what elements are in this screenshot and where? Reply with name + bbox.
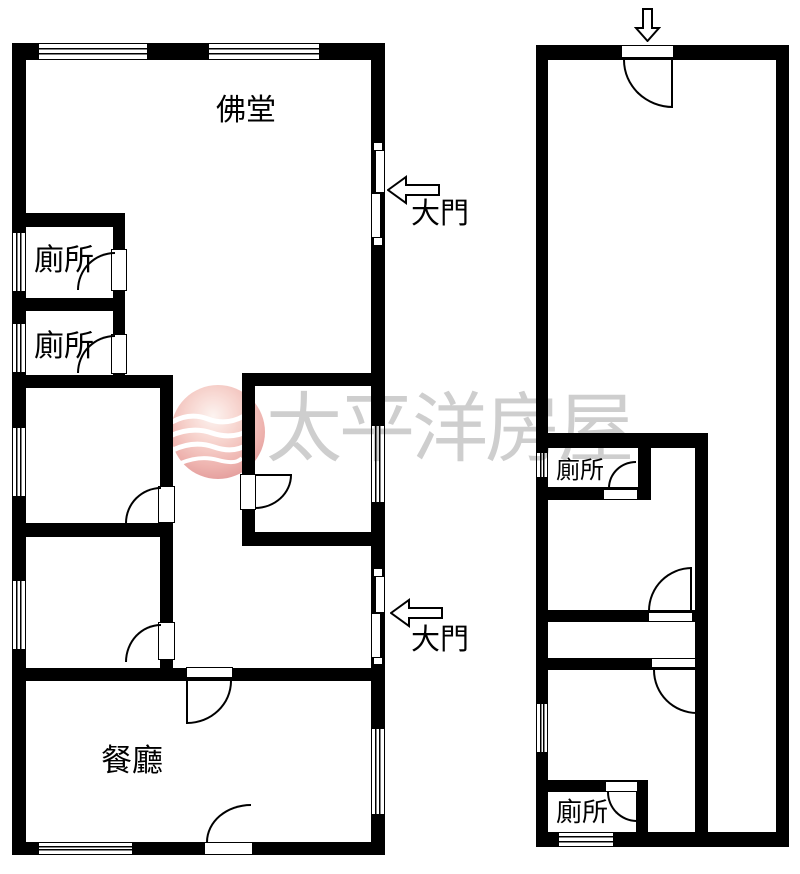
- window: [12, 232, 26, 292]
- door-leaf: [204, 842, 253, 855]
- wall: [12, 375, 173, 388]
- sliding-door-panel: [375, 150, 385, 193]
- window: [558, 832, 614, 847]
- window: [12, 323, 26, 373]
- sliding-door-panel: [371, 193, 381, 238]
- sliding-door-panel: [375, 576, 385, 613]
- door-swing-arc: [187, 681, 232, 724]
- window: [12, 580, 26, 650]
- door-leaf: [648, 612, 693, 622]
- door-leaf: [240, 474, 256, 510]
- wall: [242, 373, 255, 540]
- door-swing-arc: [653, 670, 697, 714]
- door-leaf: [603, 489, 638, 500]
- wall: [12, 213, 125, 227]
- window: [38, 43, 148, 60]
- room-label-toilet-1: 廁所: [34, 246, 94, 276]
- door-leaf: [186, 667, 233, 678]
- sliding-door-panel: [371, 613, 381, 658]
- room-label-toilet-2: 廁所: [34, 332, 94, 362]
- door-swing-arc: [608, 461, 636, 488]
- window: [536, 703, 548, 753]
- wall: [242, 373, 385, 386]
- window: [12, 427, 26, 497]
- window: [371, 728, 385, 815]
- door-leaf: [651, 658, 696, 668]
- main-door-label-2: 大門: [411, 626, 469, 655]
- wall: [12, 523, 161, 537]
- main-door-label-1: 大門: [411, 200, 469, 229]
- door-swing-arc: [125, 487, 161, 523]
- door-swing-arc: [648, 567, 692, 611]
- window: [536, 452, 548, 478]
- entrance-arrow-down-icon: [634, 8, 661, 42]
- door-swing-arc: [607, 792, 637, 822]
- window: [371, 425, 385, 503]
- room-label-toilet-3: 廁所: [556, 459, 604, 483]
- sliding-door-panel: [373, 657, 383, 665]
- sliding-door-panel: [373, 237, 383, 246]
- wall: [242, 532, 385, 546]
- wall: [695, 433, 708, 832]
- door-swing-arc: [206, 804, 251, 842]
- room-label-dining: 餐廳: [101, 745, 163, 776]
- floor-plan-canvas: 佛堂 廁所 廁所 餐廳 大門 大門: [0, 0, 800, 874]
- wall: [12, 298, 125, 311]
- wall: [536, 433, 708, 448]
- window: [38, 842, 133, 855]
- wall: [776, 60, 789, 832]
- room-label-buddha-hall: 佛堂: [216, 96, 276, 126]
- door-swing-arc: [623, 60, 673, 108]
- room-label-toilet-4: 廁所: [556, 799, 608, 825]
- window: [208, 43, 320, 60]
- door-swing-arc: [255, 475, 292, 509]
- door-swing-arc: [125, 624, 161, 662]
- door-leaf: [605, 781, 638, 792]
- door-leaf: [621, 45, 674, 58]
